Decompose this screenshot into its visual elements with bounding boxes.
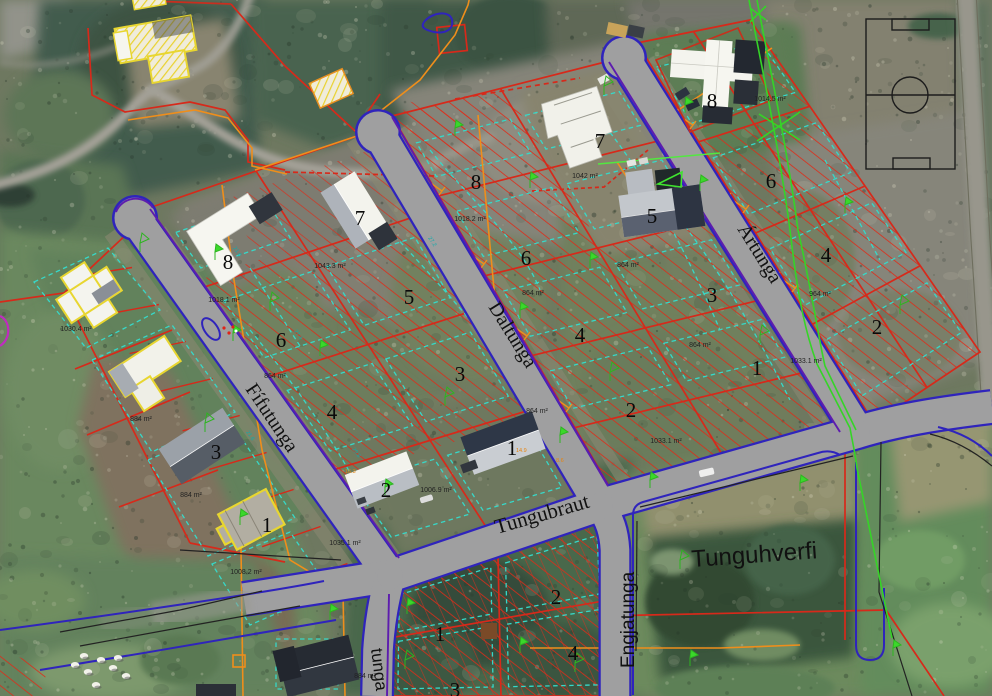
svg-text:1035.1 m²: 1035.1 m² — [329, 540, 361, 547]
svg-text:864 m²: 864 m² — [264, 373, 286, 380]
svg-text:2: 2 — [551, 585, 562, 609]
svg-text:1018.1 m²: 1018.1 m² — [208, 297, 240, 304]
svg-text:3: 3 — [450, 678, 461, 696]
svg-text:5: 5 — [404, 285, 415, 309]
svg-text:1043.3 m²: 1043.3 m² — [314, 263, 346, 270]
svg-text:1033.1 m²: 1033.1 m² — [790, 358, 822, 365]
svg-text:1033.1 m²: 1033.1 m² — [650, 438, 682, 445]
svg-text:1008.2 m²: 1008.2 m² — [230, 569, 262, 576]
svg-text:864 m²: 864 m² — [617, 262, 639, 269]
svg-text:7: 7 — [355, 206, 366, 230]
svg-text:Engjatunga: Engjatunga — [618, 571, 639, 668]
svg-text:8: 8 — [707, 89, 718, 113]
svg-text:1006.9 m²: 1006.9 m² — [420, 487, 452, 494]
svg-text:2: 2 — [626, 398, 637, 422]
svg-text:1: 1 — [262, 513, 273, 537]
svg-text:864 m²: 864 m² — [526, 408, 548, 415]
svg-text:7: 7 — [595, 129, 606, 153]
svg-text:3: 3 — [455, 362, 466, 386]
svg-text:1: 1 — [752, 356, 763, 380]
svg-text:8.6: 8.6 — [556, 458, 564, 464]
svg-text:4: 4 — [327, 400, 338, 424]
svg-text:14.9: 14.9 — [516, 448, 527, 454]
svg-text:8: 8 — [471, 170, 482, 194]
svg-text:1018.2 m²: 1018.2 m² — [454, 216, 486, 223]
svg-text:16.3: 16.3 — [345, 469, 356, 475]
svg-text:864 m²: 864 m² — [522, 290, 544, 297]
svg-text:964 m²: 964 m² — [809, 291, 831, 298]
svg-text:4: 4 — [568, 641, 579, 665]
svg-text:8: 8 — [223, 250, 234, 274]
svg-text:6: 6 — [766, 169, 777, 193]
svg-text:3: 3 — [707, 283, 718, 307]
svg-text:5: 5 — [647, 204, 658, 228]
svg-text:4: 4 — [575, 323, 586, 347]
svg-text:2: 2 — [381, 478, 392, 502]
svg-text:1042 m²: 1042 m² — [572, 173, 598, 180]
svg-text:884 m²: 884 m² — [180, 492, 202, 499]
svg-text:6: 6 — [276, 328, 287, 352]
svg-text:2: 2 — [872, 315, 883, 339]
svg-text:6: 6 — [521, 246, 532, 270]
svg-text:1030.4 m²: 1030.4 m² — [60, 326, 92, 333]
svg-text:864 m²: 864 m² — [689, 342, 711, 349]
svg-text:884 m²: 884 m² — [354, 673, 376, 680]
svg-text:884 m²: 884 m² — [130, 416, 152, 423]
svg-text:4: 4 — [821, 243, 832, 267]
svg-text:3: 3 — [211, 440, 222, 464]
svg-text:1014.5 m²: 1014.5 m² — [754, 96, 786, 103]
svg-text:1: 1 — [435, 622, 446, 646]
